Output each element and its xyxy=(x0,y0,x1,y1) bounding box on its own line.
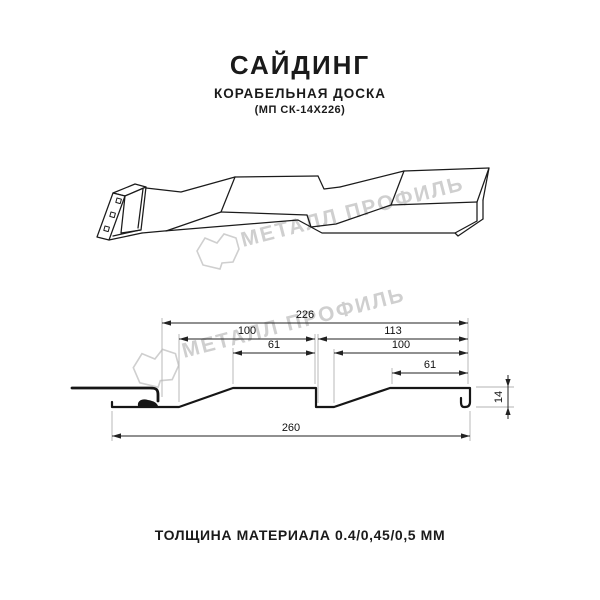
watermark-section: МЕТАЛЛ ПРОФИЛЬ xyxy=(133,283,407,387)
dim-label-113: 113 xyxy=(384,325,402,337)
material-thickness-note: ТОЛЩИНА МАТЕРИАЛА 0.4/0,45/0,5 ММ xyxy=(0,527,600,543)
dim-label-14: 14 xyxy=(493,391,505,403)
technical-drawing: МЕТАЛЛ ПРОФИЛЬ МЕТАЛЛ ПРОФИЛЬ xyxy=(0,0,600,600)
dim-label-226: 226 xyxy=(296,309,314,321)
dim-label-61-left: 61 xyxy=(268,339,280,351)
dim-label-61-right: 61 xyxy=(424,359,436,371)
brand-logo-icon xyxy=(197,234,239,269)
dim-label-260: 260 xyxy=(282,422,300,434)
brand-logo-icon xyxy=(133,349,178,387)
watermark-3d: МЕТАЛЛ ПРОФИЛЬ xyxy=(197,172,467,269)
profile-outline xyxy=(72,388,470,407)
dim-label-100-right: 100 xyxy=(392,339,410,351)
page: САЙДИНГ КОРАБЕЛЬНАЯ ДОСКА (МП СК-14Х226)… xyxy=(0,0,600,600)
dim-label-100-left: 100 xyxy=(238,325,256,337)
